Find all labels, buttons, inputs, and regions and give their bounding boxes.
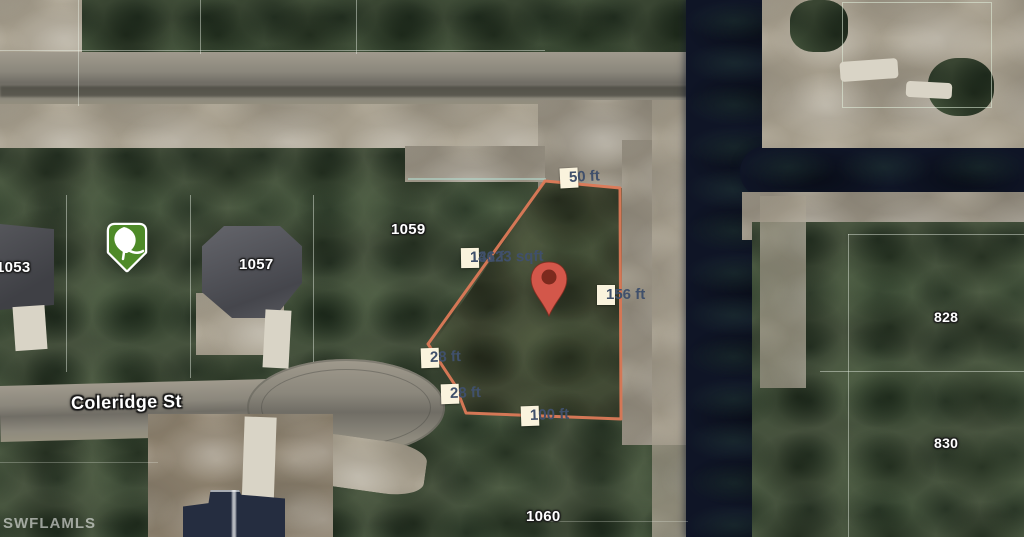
lot-number-1060: 1060	[526, 508, 561, 525]
measurement-label-east: 156 ft	[597, 285, 615, 305]
lot-number-830: 830	[934, 435, 958, 451]
lot-number-1057: 1057	[239, 256, 274, 273]
tree-shield-badge-icon[interactable]	[109, 225, 145, 270]
lot-number-1059: 1059	[391, 221, 426, 238]
measurement-label-southwest-upper: 28 ft	[421, 348, 440, 369]
parcel-area-value: 14623 sqft	[470, 247, 544, 268]
map-overlay-graphics	[0, 0, 1024, 537]
measurement-label-north: 50 ft	[559, 168, 578, 189]
satellite-map-canvas[interactable]: 50 ft 131 f14623 sqft 156 ft 28 ft 28 ft…	[0, 0, 1024, 537]
measurement-southwest-upper-value: 28 ft	[430, 347, 462, 368]
measurement-label-southwest-lower: 28 ft	[441, 384, 460, 405]
measurement-label-south: 100 ft	[521, 406, 540, 427]
lot-number-828: 828	[934, 309, 958, 325]
measurement-north-value: 50 ft	[568, 166, 600, 188]
measurement-label-northwest-area: 131 f14623 sqft	[461, 248, 479, 268]
lot-number-1053: 1053	[0, 259, 31, 276]
measurement-southwest-lower-value: 28 ft	[450, 383, 482, 404]
measurement-south-value: 100 ft	[530, 405, 570, 426]
mls-watermark: SWFLAMLS	[3, 515, 96, 532]
measurement-east-value: 156 ft	[606, 285, 645, 305]
street-name-label: Coleridge St	[71, 391, 182, 414]
